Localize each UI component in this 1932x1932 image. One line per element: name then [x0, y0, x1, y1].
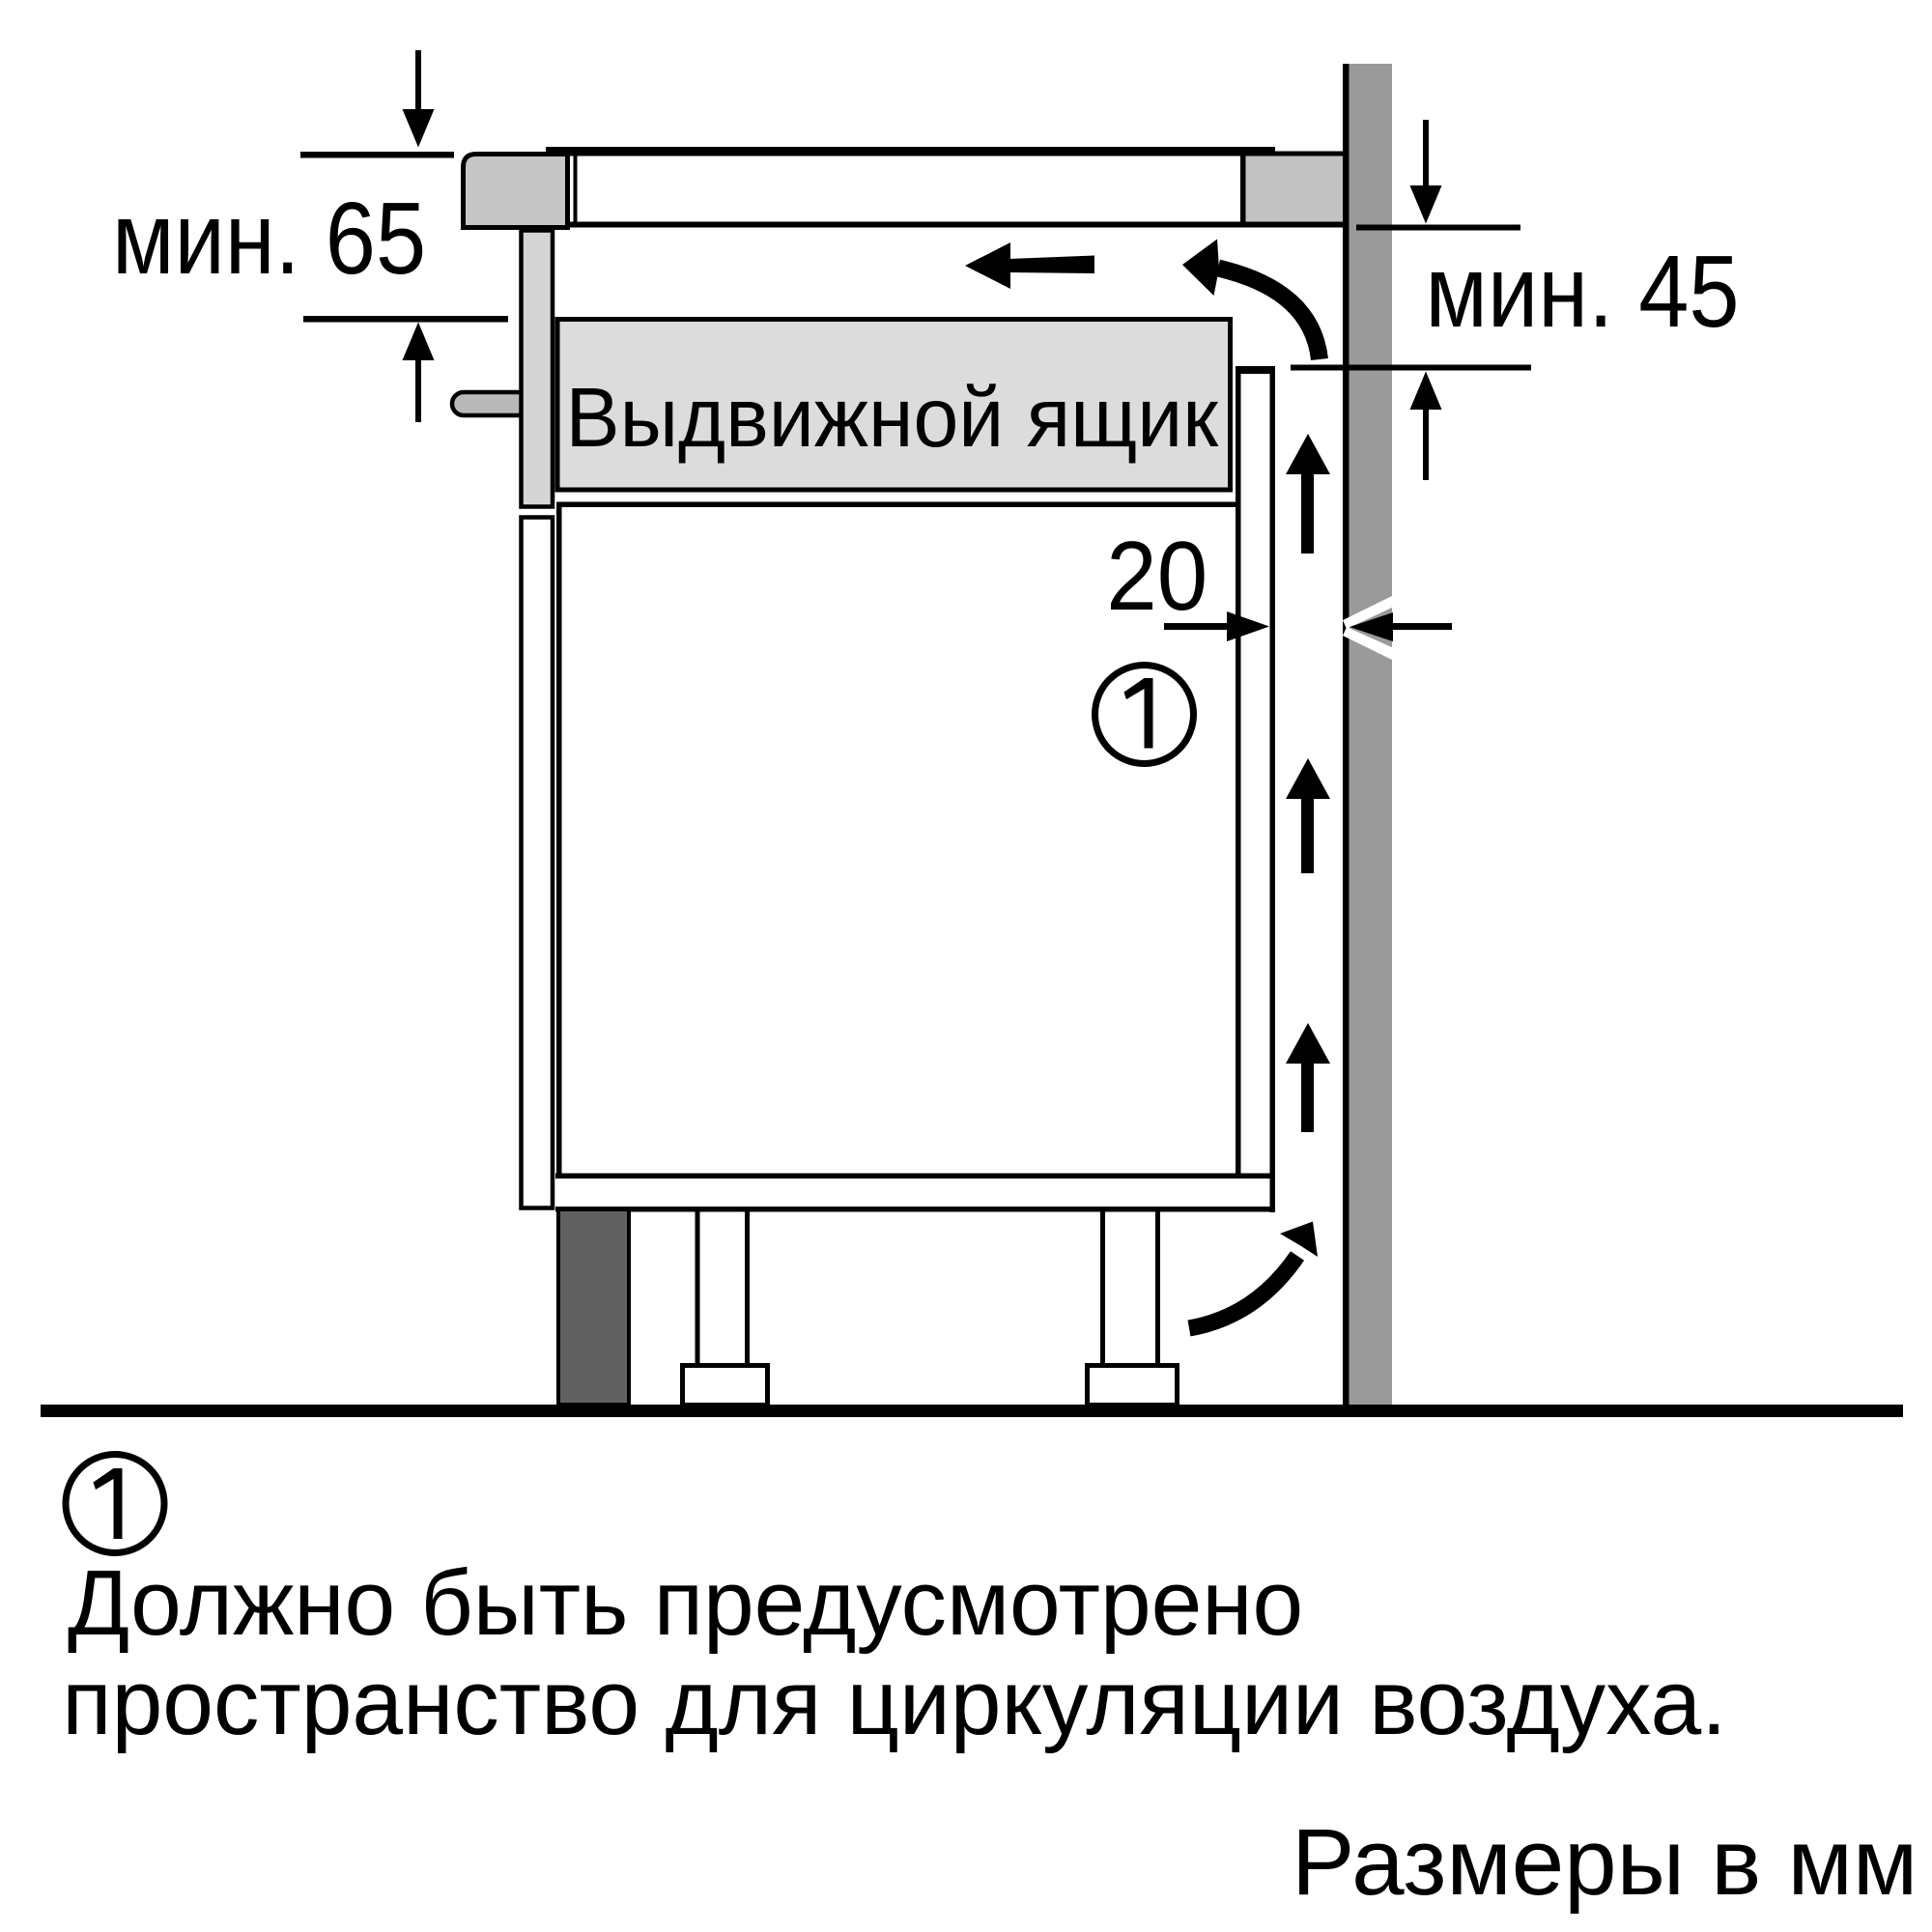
svg-text:Должно быть предусмотрено: Должно быть предусмотрено	[68, 1551, 1303, 1655]
svg-text:Выдвижной ящик: Выдвижной ящик	[566, 372, 1219, 465]
svg-text:20: 20	[1106, 521, 1207, 631]
svg-text:мин. 45: мин. 45	[1425, 235, 1739, 350]
svg-text:мин. 65: мин. 65	[112, 182, 426, 297]
svg-text:Размеры в мм: Размеры в мм	[1292, 1809, 1918, 1914]
svg-text:пространство для циркуляции во: пространство для циркуляции воздуха.	[62, 1651, 1726, 1754]
